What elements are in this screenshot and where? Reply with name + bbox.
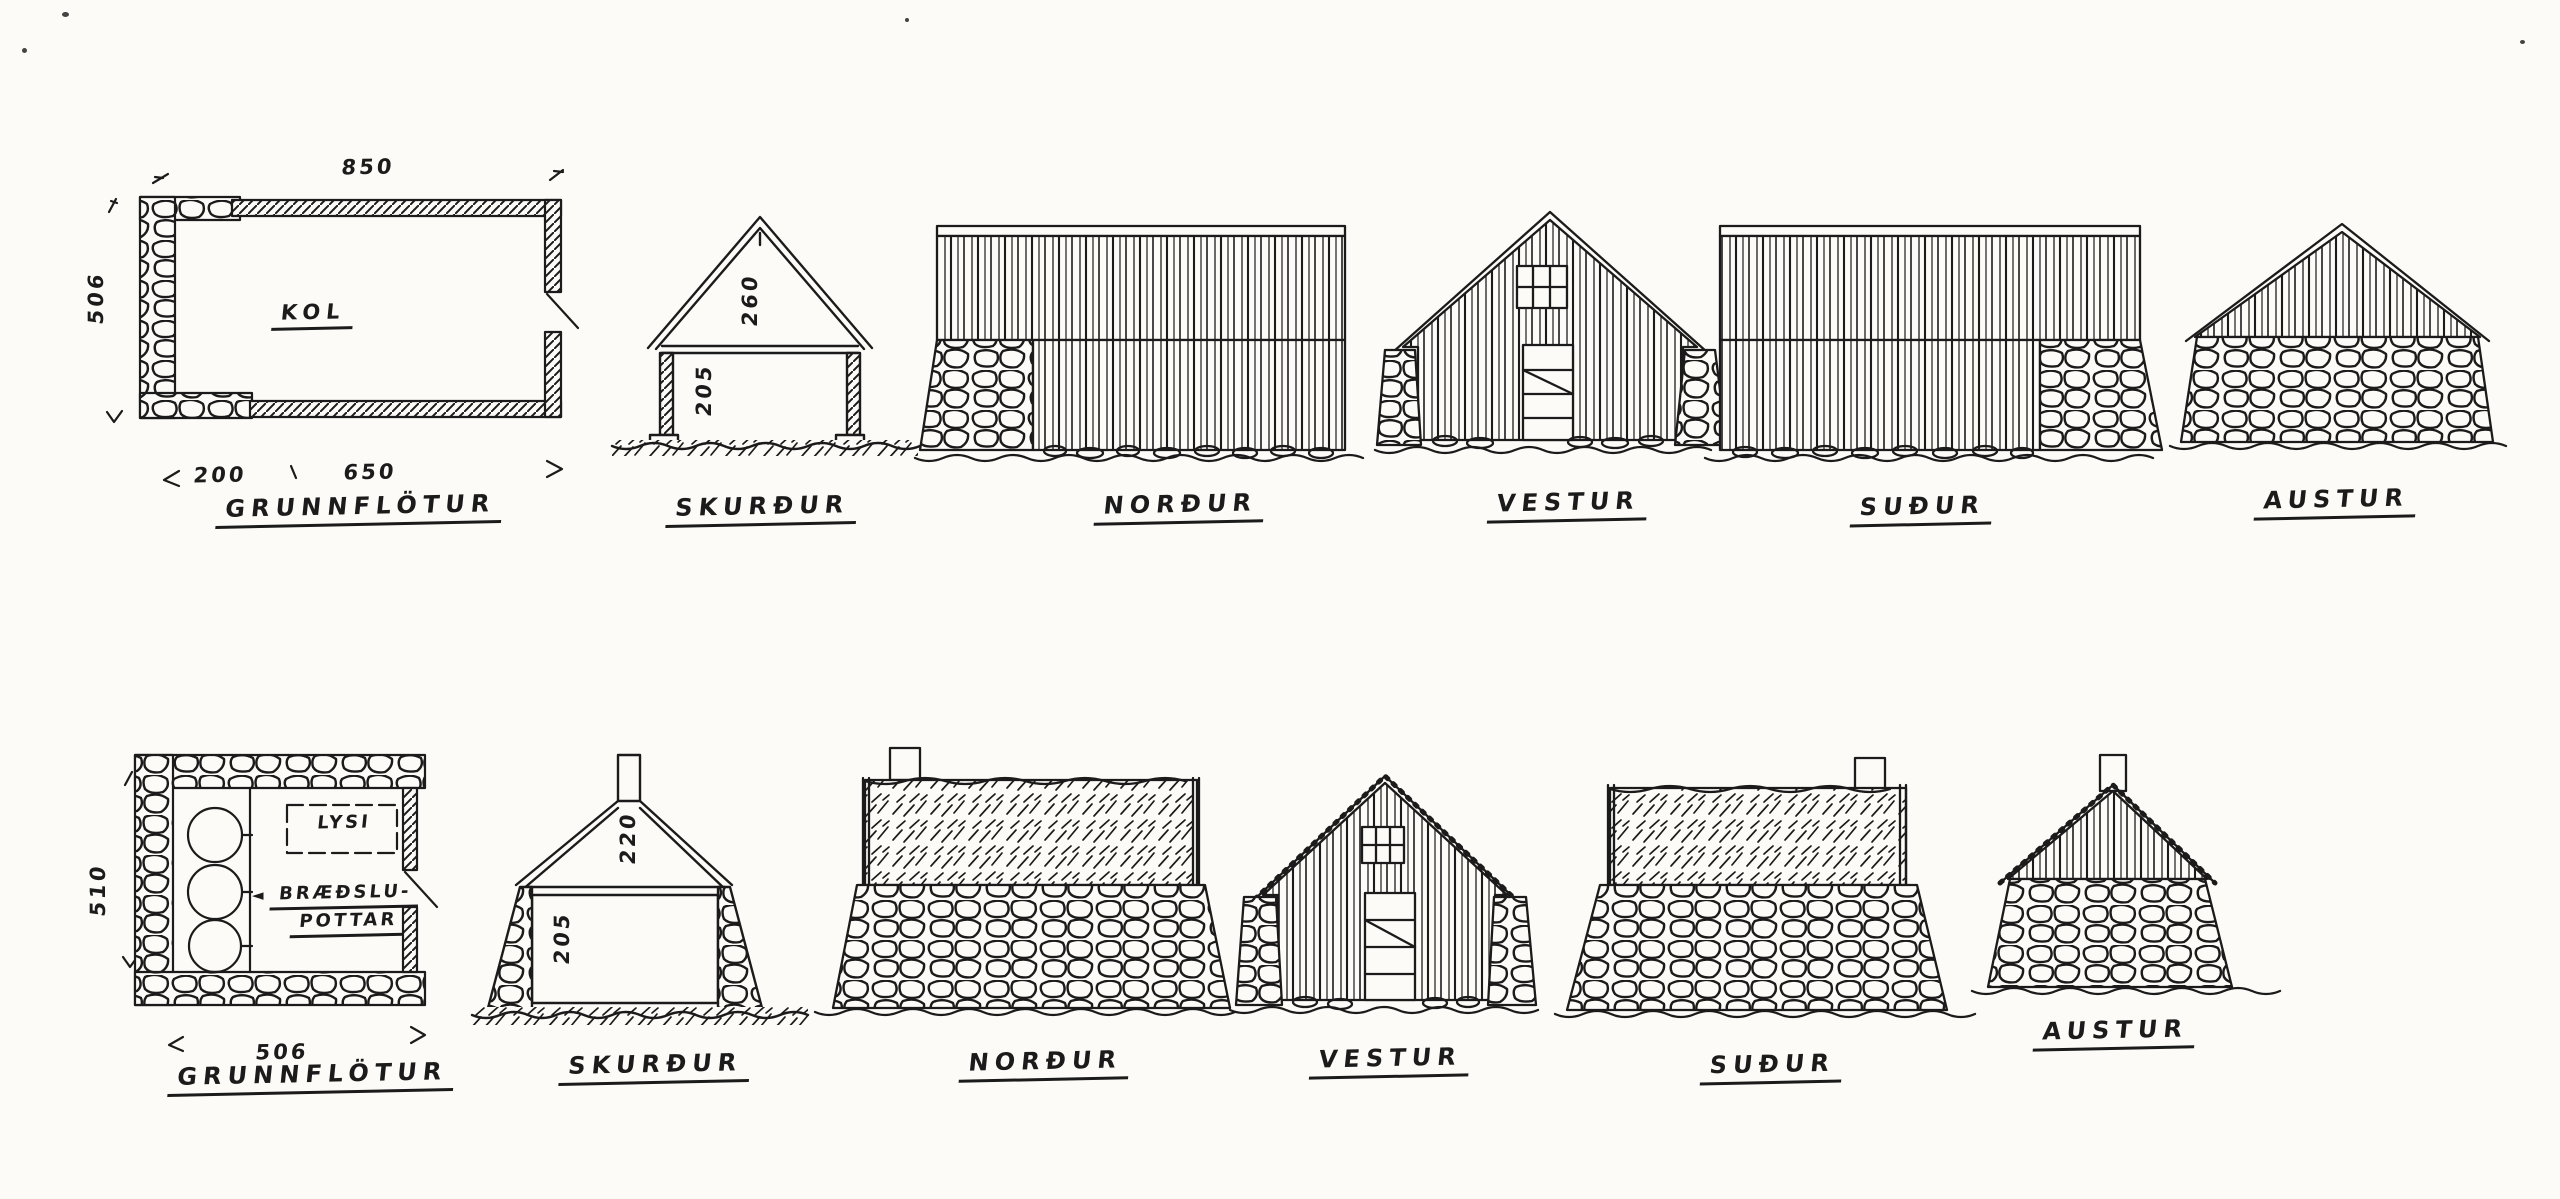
gable-plank-face [2008, 791, 2207, 879]
label-nordur-row1: NORÐUR [1094, 488, 1267, 526]
dim-510-left: 510 [86, 862, 110, 918]
west-row2-drawing [1230, 765, 1560, 1020]
fascia-board [937, 226, 1345, 236]
dim-850: 850 [340, 154, 395, 179]
gable-plank-face [2195, 232, 2480, 337]
plan-right-wall-upper [403, 788, 417, 870]
drawing-sheet: 850 506 KOL 200 650 GRUNNFLÖTUR 260 205 … [0, 0, 2560, 1199]
dim-arrow-bottom-right-icon [411, 1027, 425, 1043]
dim-220: 220 [616, 810, 640, 866]
dim-arrow-top-right-icon [550, 170, 563, 180]
section-row1-drawing [610, 200, 920, 470]
pot-circle-1 [188, 808, 242, 862]
label-braedslu: BRÆÐSLU- [269, 880, 420, 910]
chimney [890, 748, 920, 780]
ground-line [915, 455, 1363, 461]
label-grunnflotur-row1: GRUNNFLÖTUR [215, 489, 505, 529]
label-vestur-row1: VESTUR [1487, 486, 1649, 523]
plan-left-wall-stone [135, 755, 173, 1005]
left-wall-section [660, 353, 673, 435]
ink-speck [2520, 40, 2525, 44]
turf-upper-wall [1610, 788, 1906, 885]
plan-left-wall-stone [140, 197, 175, 418]
ink-speck [22, 48, 27, 53]
dim-tick-bottom-icon [291, 466, 296, 478]
room-label-lysi: LYSI [316, 811, 372, 833]
stone-base-wall [1567, 885, 1947, 1010]
dim-506-left: 506 [84, 270, 108, 326]
label-skurdur-row1: SKURÐUR [665, 490, 858, 528]
dim-arrow-left-bottom-icon [107, 411, 122, 422]
pot-circle-3 [189, 920, 241, 972]
plan-right-wall-lower [545, 332, 561, 417]
door [1523, 345, 1573, 440]
east-row2-drawing [1970, 745, 2290, 1005]
stone-wall-corner [2040, 340, 2162, 450]
south-row2-drawing [1555, 740, 1985, 1030]
east-row1-drawing [2165, 210, 2515, 465]
ground-line [1555, 1011, 1975, 1017]
stone-base-wall [1988, 879, 2232, 987]
room-label-kol: KOL [271, 299, 355, 331]
north-row2-drawing [815, 740, 1265, 1025]
plan-bottom-wall-stone [140, 393, 252, 418]
right-stone-batter [718, 887, 766, 1023]
stone-wall-corner [920, 340, 1033, 450]
stone-base-wall [833, 885, 1230, 1008]
label-austur-row2: AUSTUR [2033, 1014, 2198, 1051]
dim-260: 260 [738, 272, 762, 328]
dim-arrow-top-left-icon [153, 174, 168, 183]
dim-arrow-bottom-right-icon [547, 461, 562, 477]
dim-205-row1: 205 [692, 362, 716, 418]
dim-650: 650 [342, 459, 397, 484]
tie-beam [525, 887, 725, 895]
turf-upper-wall [865, 780, 1197, 885]
label-skurdur-row2: SKURÐUR [558, 1048, 751, 1086]
ink-speck [62, 12, 69, 17]
label-sudur-row1: SUÐUR [1850, 491, 1995, 528]
left-stone-batter [484, 887, 532, 1023]
ground-line [1705, 455, 2153, 461]
door-swing-line [547, 294, 578, 328]
upper-plank-wall [1720, 236, 2140, 340]
right-wall-section [847, 353, 860, 435]
tie-beam [662, 346, 858, 353]
ground-line [815, 1009, 1235, 1015]
label-sudur-row2: SUÐUR [1700, 1049, 1845, 1086]
lower-plank-wall [1720, 340, 2040, 450]
ink-speck [905, 18, 909, 22]
fascia-board [1720, 226, 2140, 236]
west-row1-drawing [1375, 200, 1730, 465]
plan-right-wall-upper [545, 200, 561, 292]
north-row1-drawing [915, 210, 1385, 470]
label-vestur-row2: VESTUR [1309, 1042, 1471, 1079]
ground-line [1375, 447, 1711, 453]
right-stone-pile [1488, 897, 1536, 1005]
label-austur-row1: AUSTUR [2254, 483, 2419, 520]
dim-205-row2: 205 [550, 910, 574, 966]
ground-line [2170, 443, 2506, 449]
dim-arrow-left-top-icon [125, 772, 132, 785]
label-grunnflotur-row2: GRUNNFLÖTUR [167, 1057, 457, 1097]
ground-line [1230, 1007, 1538, 1013]
pot-circle-2 [188, 865, 242, 919]
label-pottar: POTTAR [290, 909, 407, 938]
upper-plank-wall [937, 236, 1345, 340]
roof-left-double [516, 801, 618, 890]
left-stone-pile [1236, 897, 1282, 1005]
dim-arrow-bottom-left-icon [164, 471, 179, 486]
left-stone-pile [1377, 350, 1421, 445]
dim-arrow-left-top-icon [109, 199, 117, 212]
arrow-left-icon: ◄ [252, 886, 267, 904]
dim-200: 200 [192, 462, 247, 487]
roof-right-double [640, 801, 732, 890]
ground-line [1972, 988, 2280, 994]
plan-top-wall-stone [135, 755, 425, 788]
plan-top-wall-hatched [232, 200, 561, 216]
stone-base-wall [2181, 337, 2493, 442]
label-nordur-row2: NORÐUR [959, 1045, 1132, 1083]
section-row2-drawing [470, 745, 810, 1040]
plan-bottom-wall-hatched [250, 401, 561, 417]
chimney [618, 755, 640, 801]
plan-bottom-wall-stone [135, 972, 425, 1005]
south-row1-drawing [1700, 210, 2180, 470]
lower-plank-wall [1033, 340, 1345, 450]
dim-arrow-bottom-left-icon [169, 1037, 183, 1051]
